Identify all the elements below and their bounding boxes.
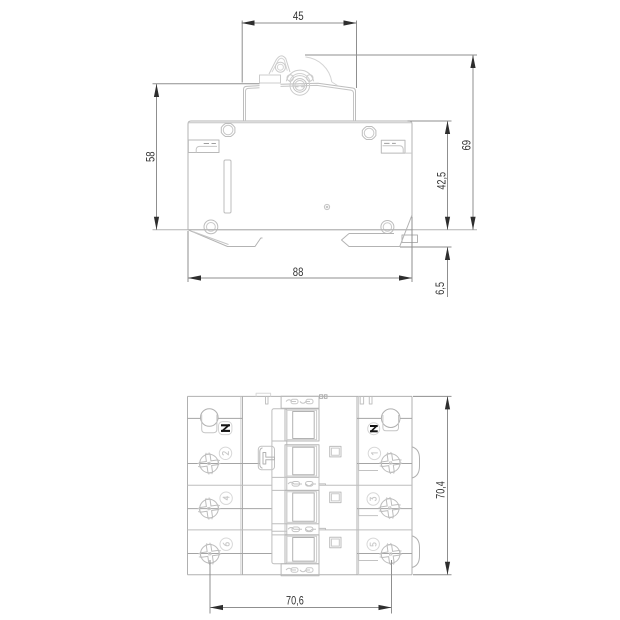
svg-text:70,4: 70,4 bbox=[434, 481, 448, 499]
svg-text:69: 69 bbox=[459, 140, 473, 151]
svg-text:42,5: 42,5 bbox=[434, 172, 448, 190]
svg-text:45: 45 bbox=[293, 9, 304, 23]
svg-text:6,5: 6,5 bbox=[433, 282, 447, 295]
svg-text:70,6: 70,6 bbox=[286, 594, 304, 608]
svg-text:88: 88 bbox=[293, 265, 304, 279]
svg-text:58: 58 bbox=[143, 151, 157, 162]
